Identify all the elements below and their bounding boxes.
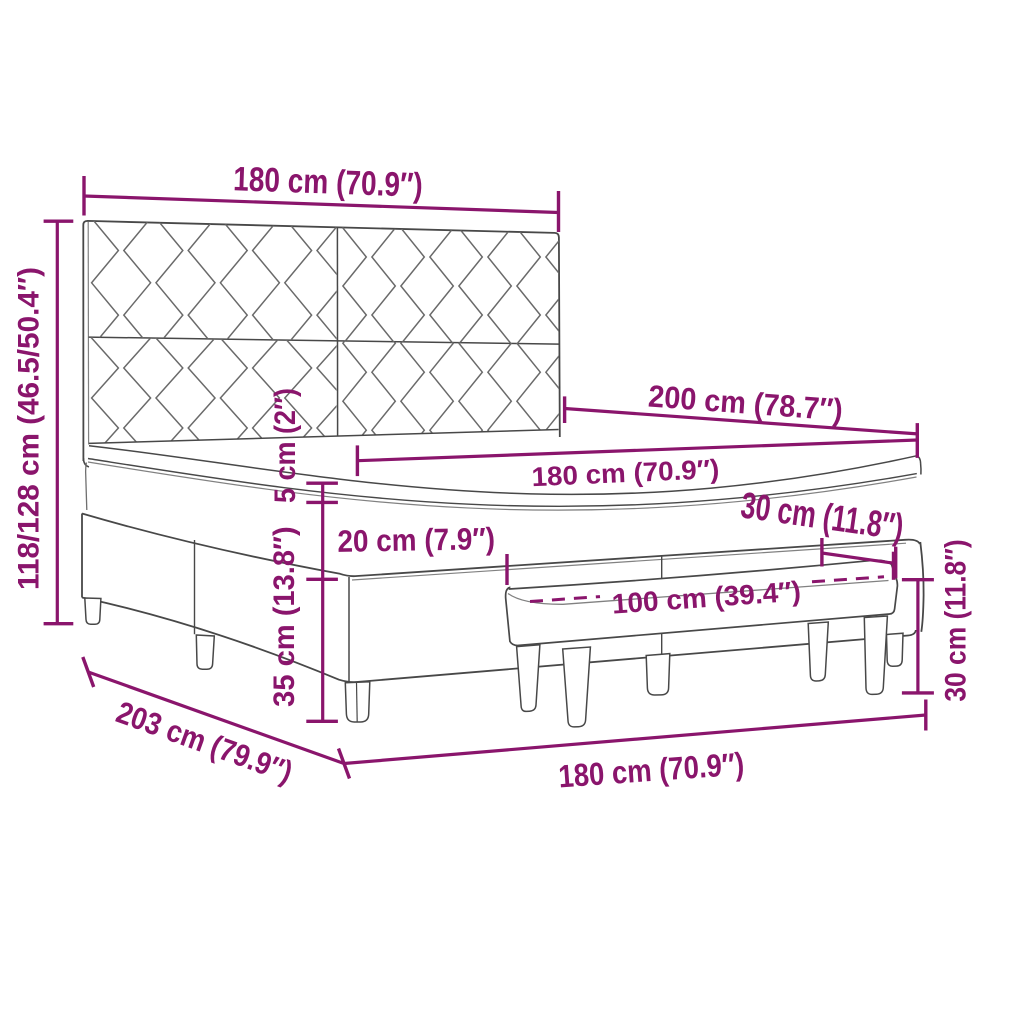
svg-text:20 cm (7.9″): 20 cm (7.9″): [337, 522, 495, 559]
svg-text:5 cm (2″): 5 cm (2″): [269, 388, 303, 503]
svg-text:35 cm (13.8″): 35 cm (13.8″): [268, 526, 301, 707]
svg-text:30 cm (11.8″): 30 cm (11.8″): [938, 539, 972, 701]
svg-text:180 cm (70.9″): 180 cm (70.9″): [233, 160, 424, 205]
svg-text:118/128 cm (46.5/50.4″): 118/128 cm (46.5/50.4″): [12, 267, 45, 590]
